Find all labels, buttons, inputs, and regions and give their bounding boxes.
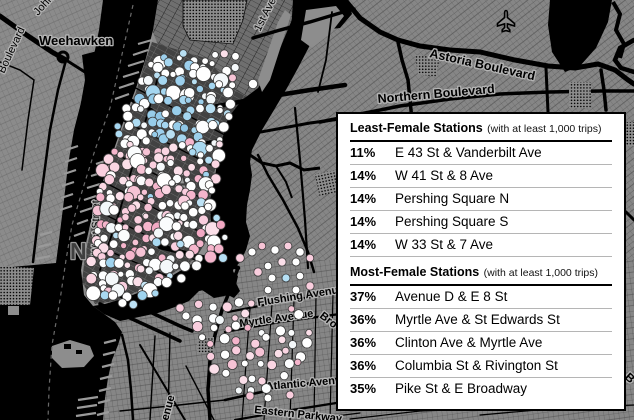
svg-text:Weehawken: Weehawken [39, 33, 113, 48]
svg-text:N: N [70, 238, 87, 264]
